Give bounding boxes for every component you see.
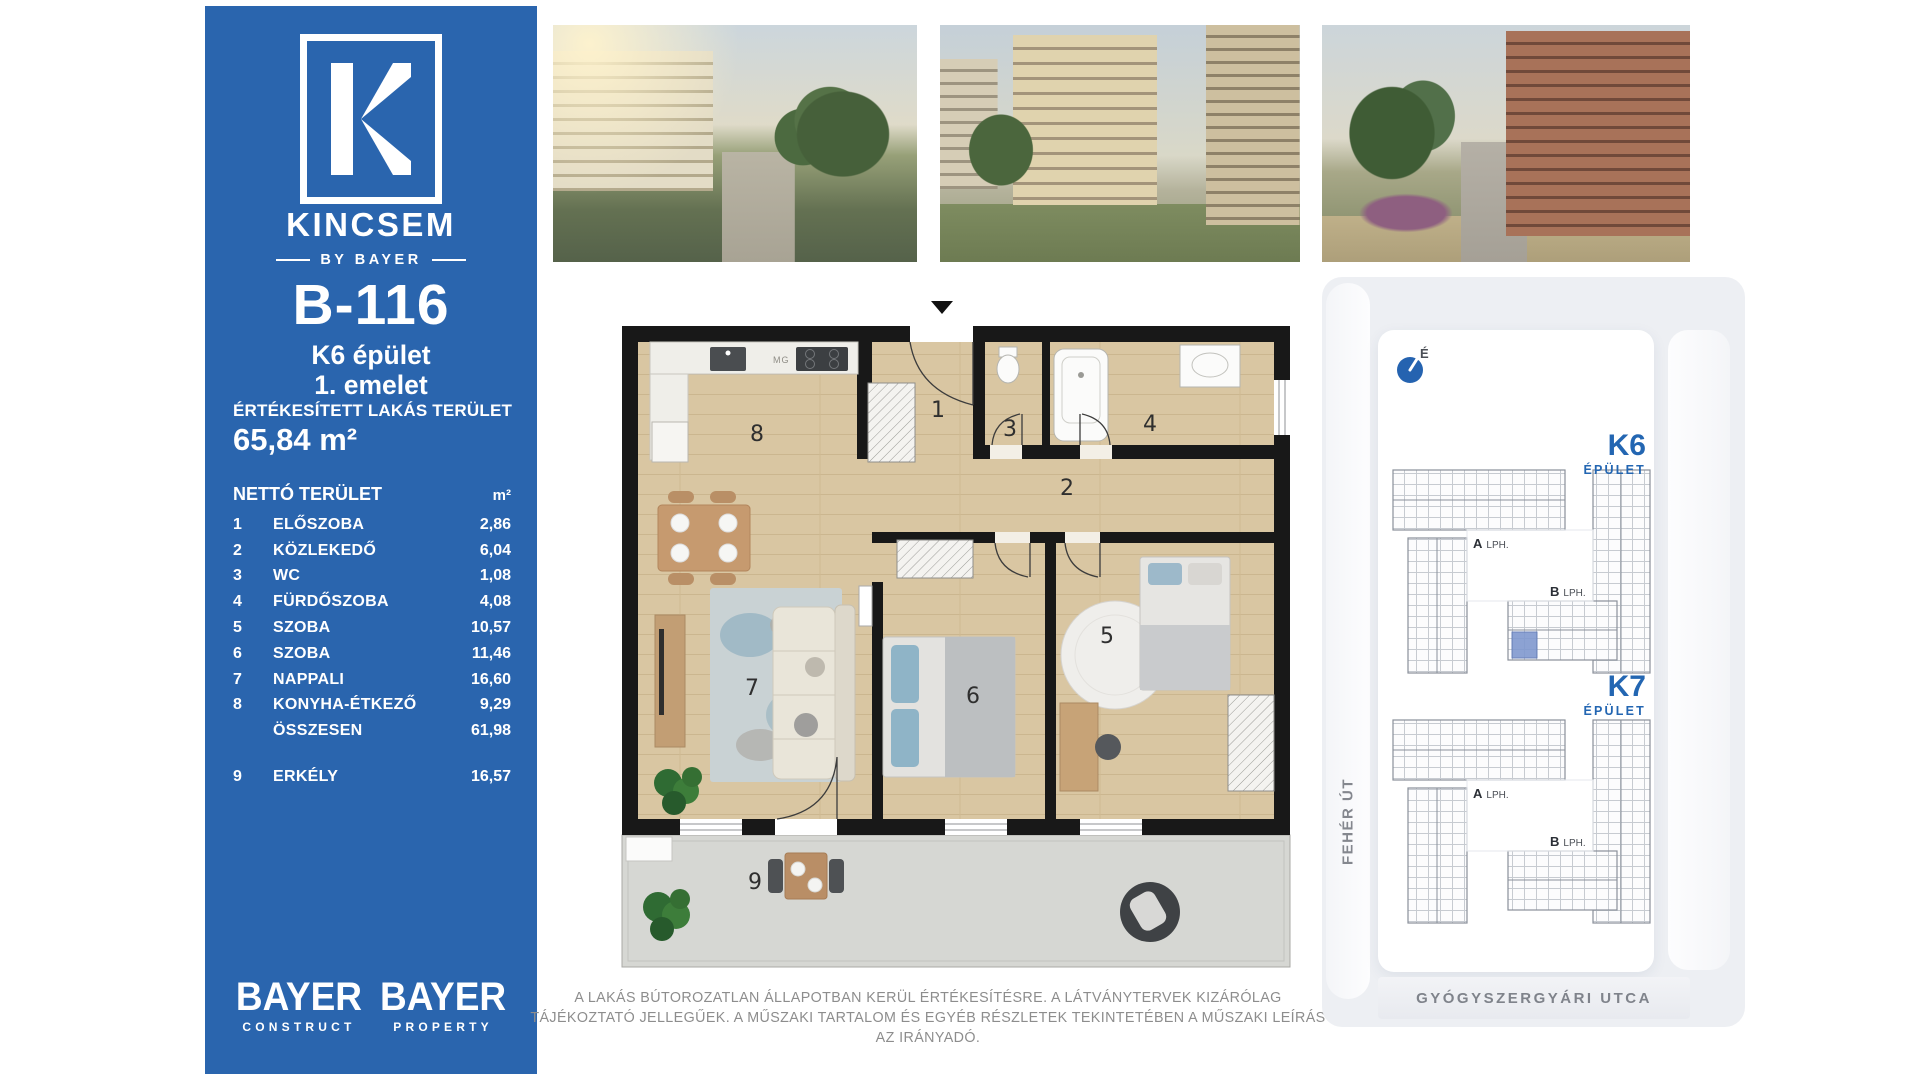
row-num: 9 xyxy=(233,768,273,786)
room-number-2: 2 xyxy=(1060,476,1074,501)
balcony-row-wrap: 9 ERKÉLY 16,57 xyxy=(233,764,511,790)
row-num: 5 xyxy=(233,619,273,637)
row-num: 7 xyxy=(233,671,273,689)
desk-chair xyxy=(1095,734,1121,760)
room-number-8: 8 xyxy=(750,422,764,447)
row-name: WC xyxy=(273,567,480,585)
byline-text: BY BAYER xyxy=(320,252,421,268)
dining-set xyxy=(658,491,750,585)
row-name: FÜRDŐSZOBA xyxy=(273,593,480,611)
kincsem-logo xyxy=(300,34,442,204)
room-number-4: 4 xyxy=(1143,412,1157,437)
site-plan-card: É ALPH. BLPH. ALPH. BLPH. xyxy=(1378,330,1654,972)
terrace-dining-set xyxy=(768,853,844,899)
brochure-page: KINCSEM BY BAYER B-116 K6 épület 1. emel… xyxy=(0,0,1920,1080)
table-row-balcony: 9 ERKÉLY 16,57 xyxy=(233,764,511,790)
byline-dash-right xyxy=(432,259,466,261)
street-left-label: FEHÉR ÚT xyxy=(1340,778,1357,865)
sold-area-label: ÉRTÉKESÍTETT LAKÁS TERÜLET xyxy=(233,401,517,421)
bathroom-sink xyxy=(1180,345,1240,387)
stair-letter: B xyxy=(1550,584,1559,599)
bedroom6-furniture xyxy=(883,637,1015,777)
table-row: 8 KONYHA-ÉTKEZŐ 9,29 xyxy=(233,693,511,719)
k6-stair-b-label: BLPH. xyxy=(1550,584,1586,599)
stair-word: LPH. xyxy=(1486,540,1508,551)
row-num: 8 xyxy=(233,696,273,714)
entrance-marker-icon xyxy=(931,301,953,314)
appliance-label: MG xyxy=(773,355,790,365)
footer-logos: BAYER CONSTRUCT BAYER PROPERTY xyxy=(205,978,537,1034)
row-name: ERKÉLY xyxy=(273,768,471,786)
net-area-unit: m² xyxy=(493,487,511,504)
stair-letter: B xyxy=(1550,834,1559,849)
building-id: K6 xyxy=(1540,431,1646,461)
stair-word: LPH. xyxy=(1486,790,1508,801)
bedroom6-wardrobe xyxy=(897,540,973,578)
logo-subtitle: CONSTRUCT xyxy=(236,1020,362,1034)
k7-stair-b-label: BLPH. xyxy=(1550,834,1586,849)
unit-floor: 1. emelet xyxy=(205,370,537,400)
render-photo-1 xyxy=(553,25,917,262)
building-k7-footprint xyxy=(1393,720,1650,923)
table-row: 6 SZOBA 11,46 xyxy=(233,641,511,667)
row-value: 2,86 xyxy=(480,516,511,534)
row-value: 1,08 xyxy=(480,567,511,585)
logo-subtitle: PROPERTY xyxy=(380,1020,506,1034)
net-area-label: NETTÓ TERÜLET xyxy=(233,484,382,505)
table-row: 3 WC 1,08 xyxy=(233,564,511,590)
logo-title: BAYER xyxy=(236,977,362,1017)
bayer-construct-logo: BAYER CONSTRUCT xyxy=(236,978,362,1034)
row-num: 6 xyxy=(233,645,273,663)
desk xyxy=(1060,703,1098,791)
row-value: 4,08 xyxy=(480,593,511,611)
byline-dash-left xyxy=(276,259,310,261)
hall-wardrobe xyxy=(868,383,915,462)
room-number-7: 7 xyxy=(745,676,759,701)
room-number-9: 9 xyxy=(748,870,762,895)
building-k7-label: K7 ÉPÜLET xyxy=(1540,672,1646,718)
row-num: 4 xyxy=(233,593,273,611)
toilet xyxy=(997,347,1019,383)
k7-stair-a-label: ALPH. xyxy=(1473,786,1509,801)
bayer-property-logo: BAYER PROPERTY xyxy=(380,978,506,1034)
room-number-3: 3 xyxy=(1003,417,1017,442)
tv xyxy=(659,629,664,715)
unit-location: K6 épület 1. emelet xyxy=(205,340,537,400)
render-photo-3 xyxy=(1322,25,1690,262)
row-value: 61,98 xyxy=(471,722,511,740)
terrace-lounge-chair xyxy=(1120,882,1180,942)
row-value: 16,60 xyxy=(471,671,511,689)
table-row-total: ÖSSZESEN 61,98 xyxy=(233,718,511,744)
table-row: 1 ELŐSZOBA 2,86 xyxy=(233,512,511,538)
k-logo-icon xyxy=(331,63,411,175)
building-id: K7 xyxy=(1540,672,1646,702)
room-number-1: 1 xyxy=(931,398,945,423)
net-area-header: NETTÓ TERÜLET m² xyxy=(233,484,511,505)
row-name: ELŐSZOBA xyxy=(273,516,480,534)
brand-byline: BY BAYER xyxy=(205,252,537,268)
row-name: SZOBA xyxy=(273,619,471,637)
row-name: SZOBA xyxy=(273,645,472,663)
room-number-6: 6 xyxy=(966,684,980,709)
site-plan-panel: FEHÉR ÚT xyxy=(1322,277,1745,1027)
unit-id: B-116 xyxy=(205,272,537,338)
terrace-planter xyxy=(626,837,672,861)
table-row: 2 KÖZLEKEDŐ 6,04 xyxy=(233,538,511,564)
row-value: 11,46 xyxy=(472,645,511,663)
terrace xyxy=(622,835,1290,967)
stair-word: LPH. xyxy=(1563,588,1585,599)
building-k6-label: K6 ÉPÜLET xyxy=(1540,431,1646,477)
apartment-floor-plan: MG xyxy=(610,295,1300,975)
row-value: 9,29 xyxy=(480,696,511,714)
room-number-5: 5 xyxy=(1100,624,1114,649)
row-value: 6,04 xyxy=(480,542,511,560)
net-area-table: 1 ELŐSZOBA 2,86 2 KÖZLEKEDŐ 6,04 3 WC 1,… xyxy=(233,512,511,744)
street-left-strip: FEHÉR ÚT xyxy=(1326,283,1370,999)
street-bottom-label: GYÓGYSZERGYÁRI UTCA xyxy=(1378,977,1690,1019)
highlighted-unit xyxy=(1512,632,1537,658)
row-name: KÖZLEKEDŐ xyxy=(273,542,480,560)
site-plan-drawing: É ALPH. BLPH. ALPH. BLPH. xyxy=(1378,330,1654,972)
brand-name: KINCSEM xyxy=(205,206,537,244)
row-num: 1 xyxy=(233,516,273,534)
row-num: 3 xyxy=(233,567,273,585)
row-name: ÖSSZESEN xyxy=(273,722,471,740)
stair-letter: A xyxy=(1473,786,1483,801)
row-name: KONYHA-ÉTKEZŐ xyxy=(273,696,480,714)
sidebar: KINCSEM BY BAYER B-116 K6 épület 1. emel… xyxy=(205,6,537,1074)
unit-building: K6 épület xyxy=(205,340,537,370)
compass-label: É xyxy=(1420,346,1429,361)
bedroom5-wardrobe xyxy=(1228,695,1274,791)
building-type: ÉPÜLET xyxy=(1540,463,1646,477)
row-num: 2 xyxy=(233,542,273,560)
radiator xyxy=(859,586,872,626)
sofa xyxy=(773,607,835,779)
table-row: 5 SZOBA 10,57 xyxy=(233,615,511,641)
table-row: 4 FÜRDŐSZOBA 4,08 xyxy=(233,589,511,615)
disclaimer-text: A LAKÁS BÚTOROZATLAN ÁLLAPOTBAN KERÜL ÉR… xyxy=(528,988,1328,1048)
building-type: ÉPÜLET xyxy=(1540,704,1646,718)
compass-icon: É xyxy=(1397,346,1429,383)
render-photo-2 xyxy=(940,25,1300,262)
row-value: 16,57 xyxy=(471,768,511,786)
stair-word: LPH. xyxy=(1563,838,1585,849)
sold-area-value: 65,84 m² xyxy=(233,422,357,458)
logo-title: BAYER xyxy=(380,977,506,1017)
row-name: NAPPALI xyxy=(273,671,471,689)
street-right-strip xyxy=(1668,330,1730,970)
k6-stair-a-label: ALPH. xyxy=(1473,536,1509,551)
cooktop xyxy=(796,347,848,371)
row-value: 10,57 xyxy=(471,619,511,637)
stair-letter: A xyxy=(1473,536,1483,551)
table-row: 7 NAPPALI 16,60 xyxy=(233,667,511,693)
fridge xyxy=(652,422,688,462)
